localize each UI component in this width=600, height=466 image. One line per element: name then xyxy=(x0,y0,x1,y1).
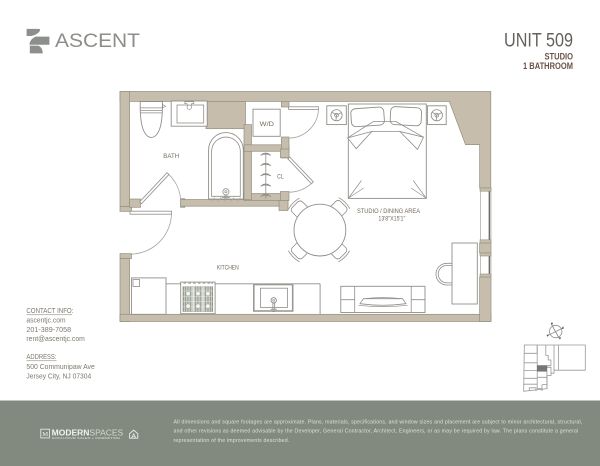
svg-text:500 Communipaw Ave: 500 Communipaw Ave xyxy=(26,362,94,371)
svg-text:Jersey City, NJ 07304: Jersey City, NJ 07304 xyxy=(26,371,91,380)
svg-text:KITCHEN: KITCHEN xyxy=(217,265,239,272)
svg-text:ascentjc.com: ascentjc.com xyxy=(26,316,65,325)
svg-text:CL: CL xyxy=(277,173,284,180)
svg-text:All dimensions and square foot: All dimensions and square footages are a… xyxy=(174,419,583,425)
svg-text:ASCENT: ASCENT xyxy=(55,30,140,52)
svg-text:CONTACT INFO:: CONTACT INFO: xyxy=(26,308,73,315)
svg-text:EXCLUSIVE SALES + MARKETING: EXCLUSIVE SALES + MARKETING xyxy=(52,436,121,440)
svg-text:1 BATHROOM: 1 BATHROOM xyxy=(523,61,573,71)
svg-text:rent@ascentjc.com: rent@ascentjc.com xyxy=(26,334,84,343)
svg-text:UNIT 509: UNIT 509 xyxy=(504,29,573,51)
svg-text:M: M xyxy=(42,431,48,438)
svg-text:ADDRESS:: ADDRESS: xyxy=(26,354,56,361)
svg-text:BATH: BATH xyxy=(163,153,179,160)
svg-text:W/D: W/D xyxy=(260,121,275,128)
svg-text:and other revisions as deemed: and other revisions as deemed advisable … xyxy=(174,429,579,435)
svg-text:STUDIO: STUDIO xyxy=(545,51,574,61)
svg-text:13'8"X15'1": 13'8"X15'1" xyxy=(378,215,405,222)
svg-text:STUDIO / DINING AREA: STUDIO / DINING AREA xyxy=(357,208,421,215)
svg-text:representation of the improvem: representation of the improvements descr… xyxy=(174,438,290,444)
svg-text:201-389-7058: 201-389-7058 xyxy=(26,325,71,334)
